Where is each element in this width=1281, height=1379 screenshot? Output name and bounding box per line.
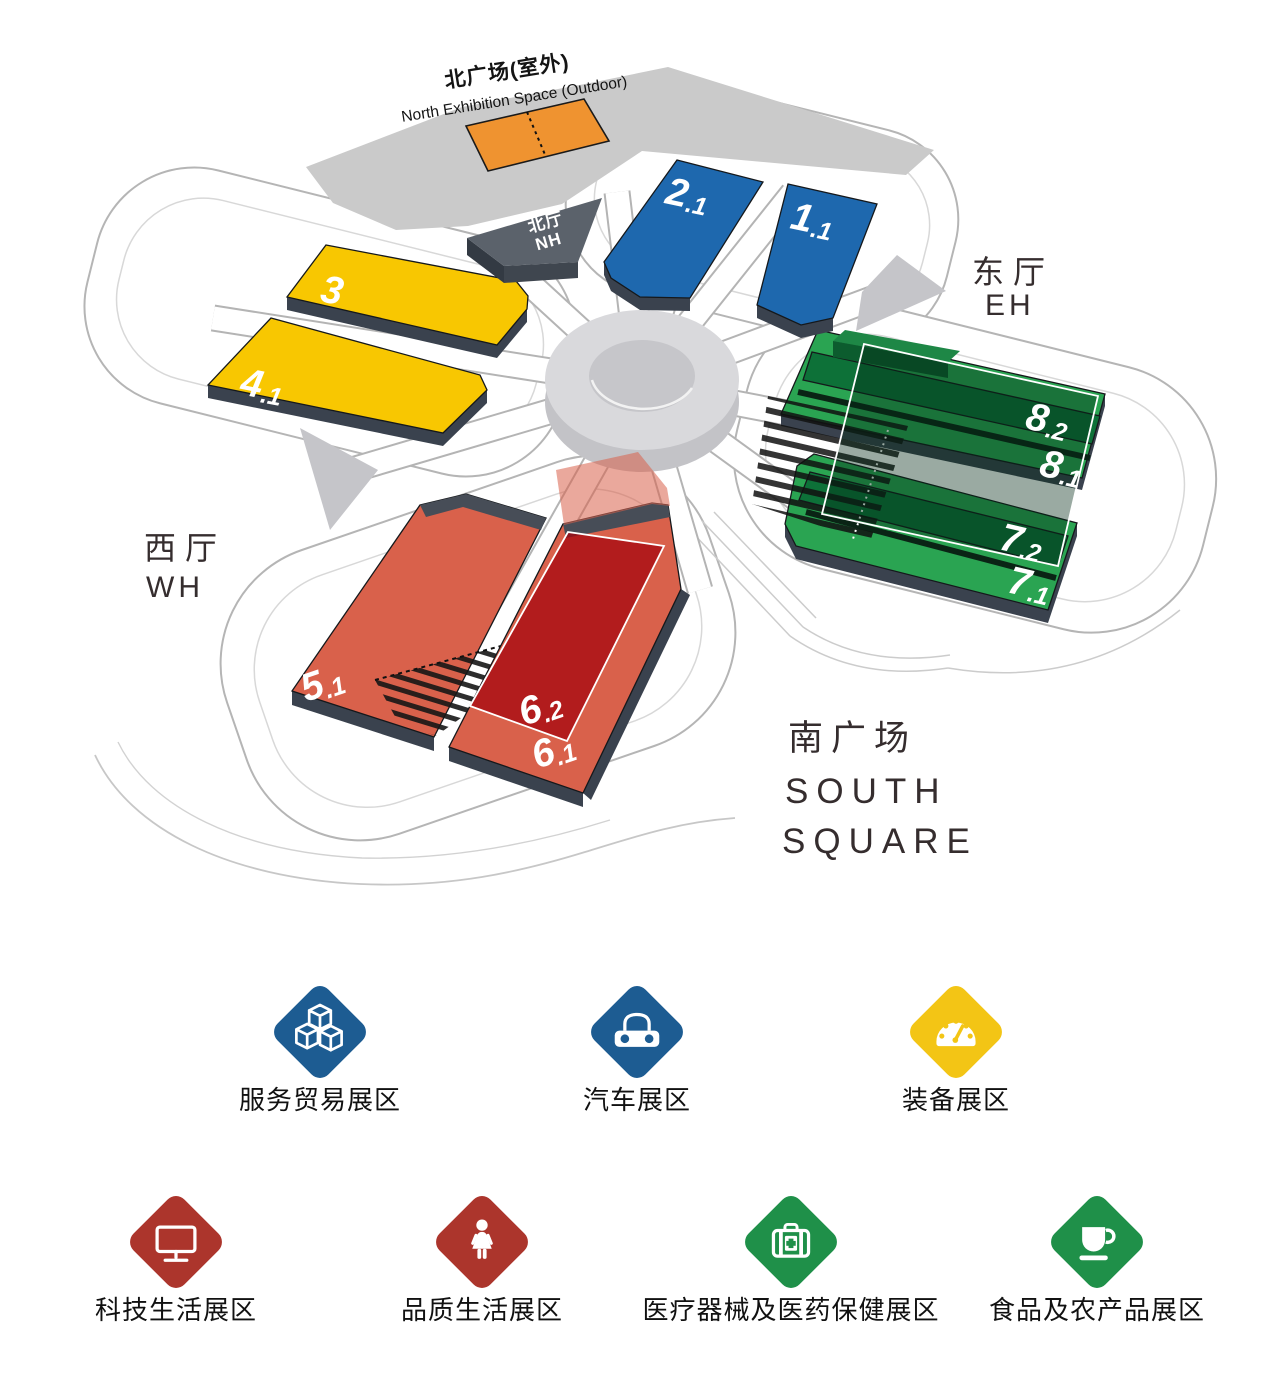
venue-map: 北厅 NH 2.1 1.1 3 4.1 8.2 8.1 7.2 7.1 5.1 …	[0, 0, 1281, 960]
south-square-label: 南广场 SOUTH SQUARE	[782, 719, 978, 861]
legend-label: 食品及农产品展区	[937, 1290, 1257, 1327]
legend-label: 服务贸易展区	[160, 1080, 480, 1117]
legend-item-tech-life: 科技生活展区	[16, 1182, 336, 1327]
south-square-label-en1: SOUTH	[785, 772, 948, 811]
legend-label: 医疗器械及医药保健展区	[631, 1290, 951, 1327]
legend-label: 品质生活展区	[322, 1290, 642, 1327]
legend-diamond	[125, 1191, 227, 1293]
legend-label: 科技生活展区	[16, 1290, 336, 1327]
south-square-label-zh: 南广场	[788, 719, 917, 758]
legend-item-food-agri: 食品及农产品展区	[937, 1182, 1257, 1327]
legend-label: 装备展区	[796, 1080, 1116, 1117]
south-square-label-en2: SQUARE	[782, 822, 978, 861]
west-hall-label-en: WH	[146, 571, 204, 604]
legend-item-medical: 医疗器械及医药保健展区	[631, 1182, 951, 1327]
legend-item-automobile: 汽车展区	[477, 972, 797, 1117]
legend-item-quality-life: 品质生活展区	[322, 1182, 642, 1327]
east-hall-label-en: EH	[985, 289, 1035, 322]
legend-item-service-trade: 服务贸易展区	[160, 972, 480, 1117]
west-hall-label-zh: 西厅	[144, 530, 226, 566]
legend-label: 汽车展区	[477, 1080, 797, 1117]
east-hall-label-zh: 东厅	[972, 254, 1054, 290]
central-ring	[545, 310, 739, 472]
page: 北厅 NH 2.1 1.1 3 4.1 8.2 8.1 7.2 7.1 5.1 …	[0, 0, 1281, 1379]
legend-item-equipment: 装备展区	[796, 972, 1116, 1117]
